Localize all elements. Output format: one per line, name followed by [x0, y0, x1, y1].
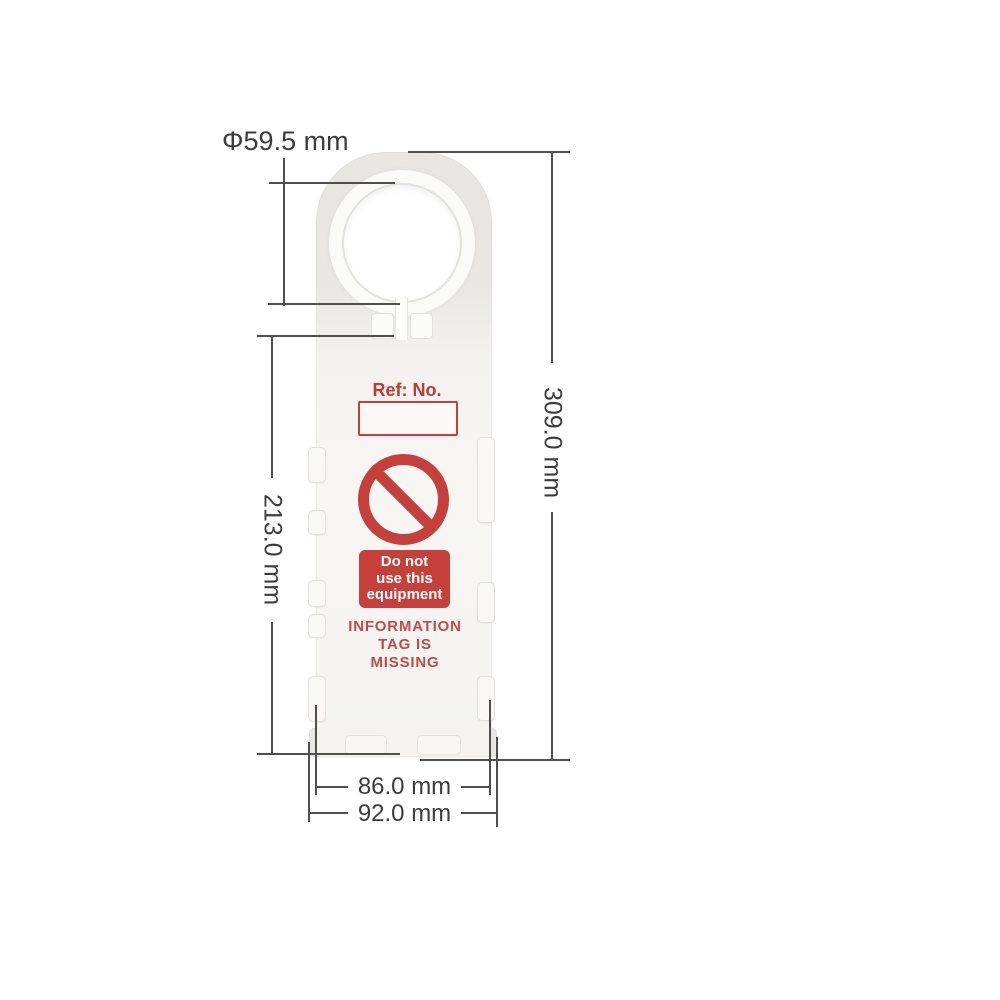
- dim-overall-vline-lower: [551, 512, 553, 761]
- dim-inner-width-label: 86.0 mm: [348, 773, 461, 801]
- dim-body-top-tick: [257, 335, 394, 337]
- dim-hole-diameter-label: Φ59.5 mm: [222, 126, 352, 157]
- dim-body-height-label-wrap: 213.0 mm: [252, 478, 292, 622]
- dim-body-height-label: 213.0 mm: [258, 494, 287, 605]
- dim-inner-ext-left: [315, 705, 317, 795]
- dim-outer-ext-left: [308, 742, 310, 822]
- side-tab-left: [308, 580, 326, 607]
- dim-inner-tick-left: [316, 786, 348, 788]
- warning-line: INFORMATION: [337, 618, 473, 636]
- dim-body-vline-upper: [271, 335, 273, 478]
- side-tab-right: [477, 437, 495, 523]
- warning-line: TAG IS: [337, 636, 473, 654]
- do-not-use-line: Do not: [359, 554, 450, 571]
- scaffold-tag-dimension-diagram: Ref: No. Do not use this equipment INFOR…: [0, 0, 1000, 1000]
- side-tab-left: [308, 676, 326, 722]
- do-not-use-line: equipment: [359, 587, 450, 604]
- bottom-foot-left: [345, 735, 387, 755]
- side-tab-left: [308, 510, 326, 535]
- dim-body-bottom-tick: [257, 753, 400, 755]
- dim-hole-bottom-tick: [268, 303, 400, 305]
- ref-no-label: Ref: No.: [349, 380, 465, 401]
- dim-inner-ext-right: [489, 700, 491, 795]
- do-not-use-sign: Do not use this equipment: [359, 550, 450, 608]
- side-tab-right: [477, 676, 495, 721]
- hanger-hole: [342, 183, 462, 303]
- dim-inner-tick-right: [461, 786, 490, 788]
- dim-outer-width-label: 92.0 mm: [348, 800, 461, 828]
- do-not-use-line: use this: [359, 571, 450, 588]
- dim-overall-vline-upper: [551, 151, 553, 363]
- information-missing-text: INFORMATION TAG IS MISSING: [337, 618, 473, 672]
- dim-body-vline-lower: [271, 622, 273, 754]
- side-tab-right: [477, 582, 495, 623]
- slot-tab-right: [410, 313, 433, 339]
- bottom-foot-right: [417, 735, 461, 755]
- dim-overall-height-label-wrap: 309.0 mm: [532, 378, 572, 508]
- side-tab-left: [308, 447, 326, 483]
- side-tab-left: [308, 614, 326, 638]
- ref-no-entry-box: [358, 401, 458, 436]
- dim-hole-diameter-vline: [283, 158, 285, 306]
- dim-overall-top-tick: [408, 151, 570, 153]
- warning-line: MISSING: [337, 654, 473, 672]
- dim-outer-tick-left: [309, 812, 348, 814]
- dim-outer-tick-right: [461, 812, 497, 814]
- dim-overall-height-label: 309.0 mm: [538, 387, 567, 498]
- dim-hole-top-tick: [269, 182, 395, 184]
- dim-overall-bottom-tick: [420, 759, 570, 761]
